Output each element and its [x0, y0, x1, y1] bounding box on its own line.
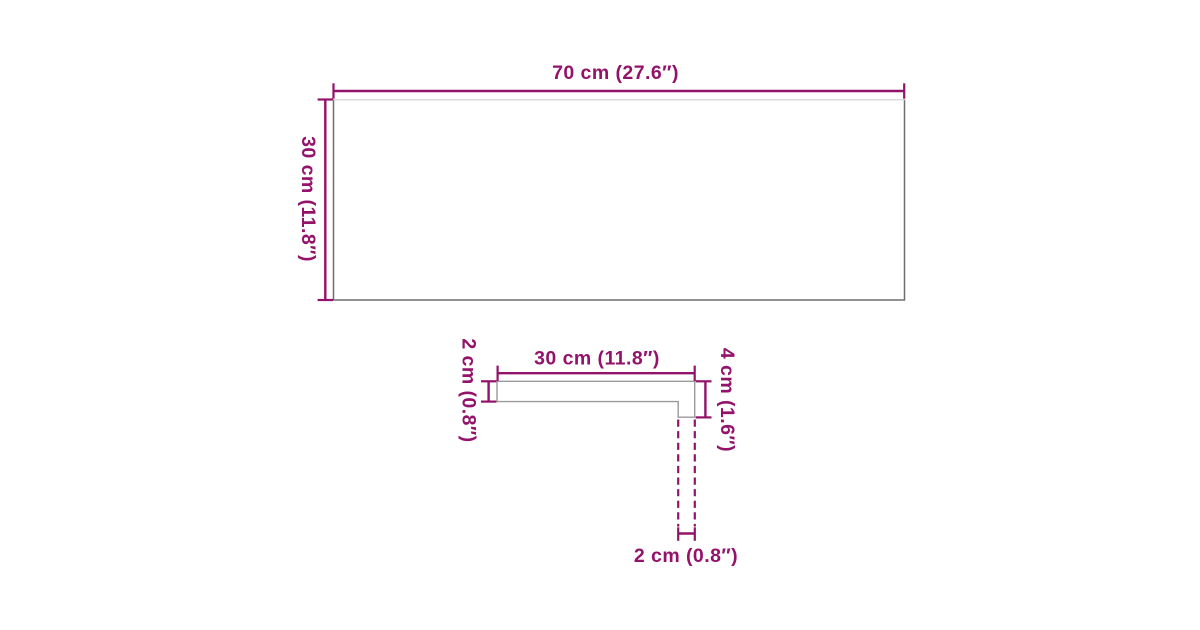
svg-text:70 cm (27.6″): 70 cm (27.6″): [552, 62, 679, 84]
svg-text:30 cm (11.8″): 30 cm (11.8″): [297, 136, 319, 262]
svg-text:4 cm (1.6″): 4 cm (1.6″): [716, 348, 738, 452]
svg-text:2 cm (0.8″): 2 cm (0.8″): [458, 338, 480, 442]
svg-text:30 cm (11.8″): 30 cm (11.8″): [534, 348, 660, 370]
svg-text:2 cm (0.8″): 2 cm (0.8″): [634, 545, 738, 567]
